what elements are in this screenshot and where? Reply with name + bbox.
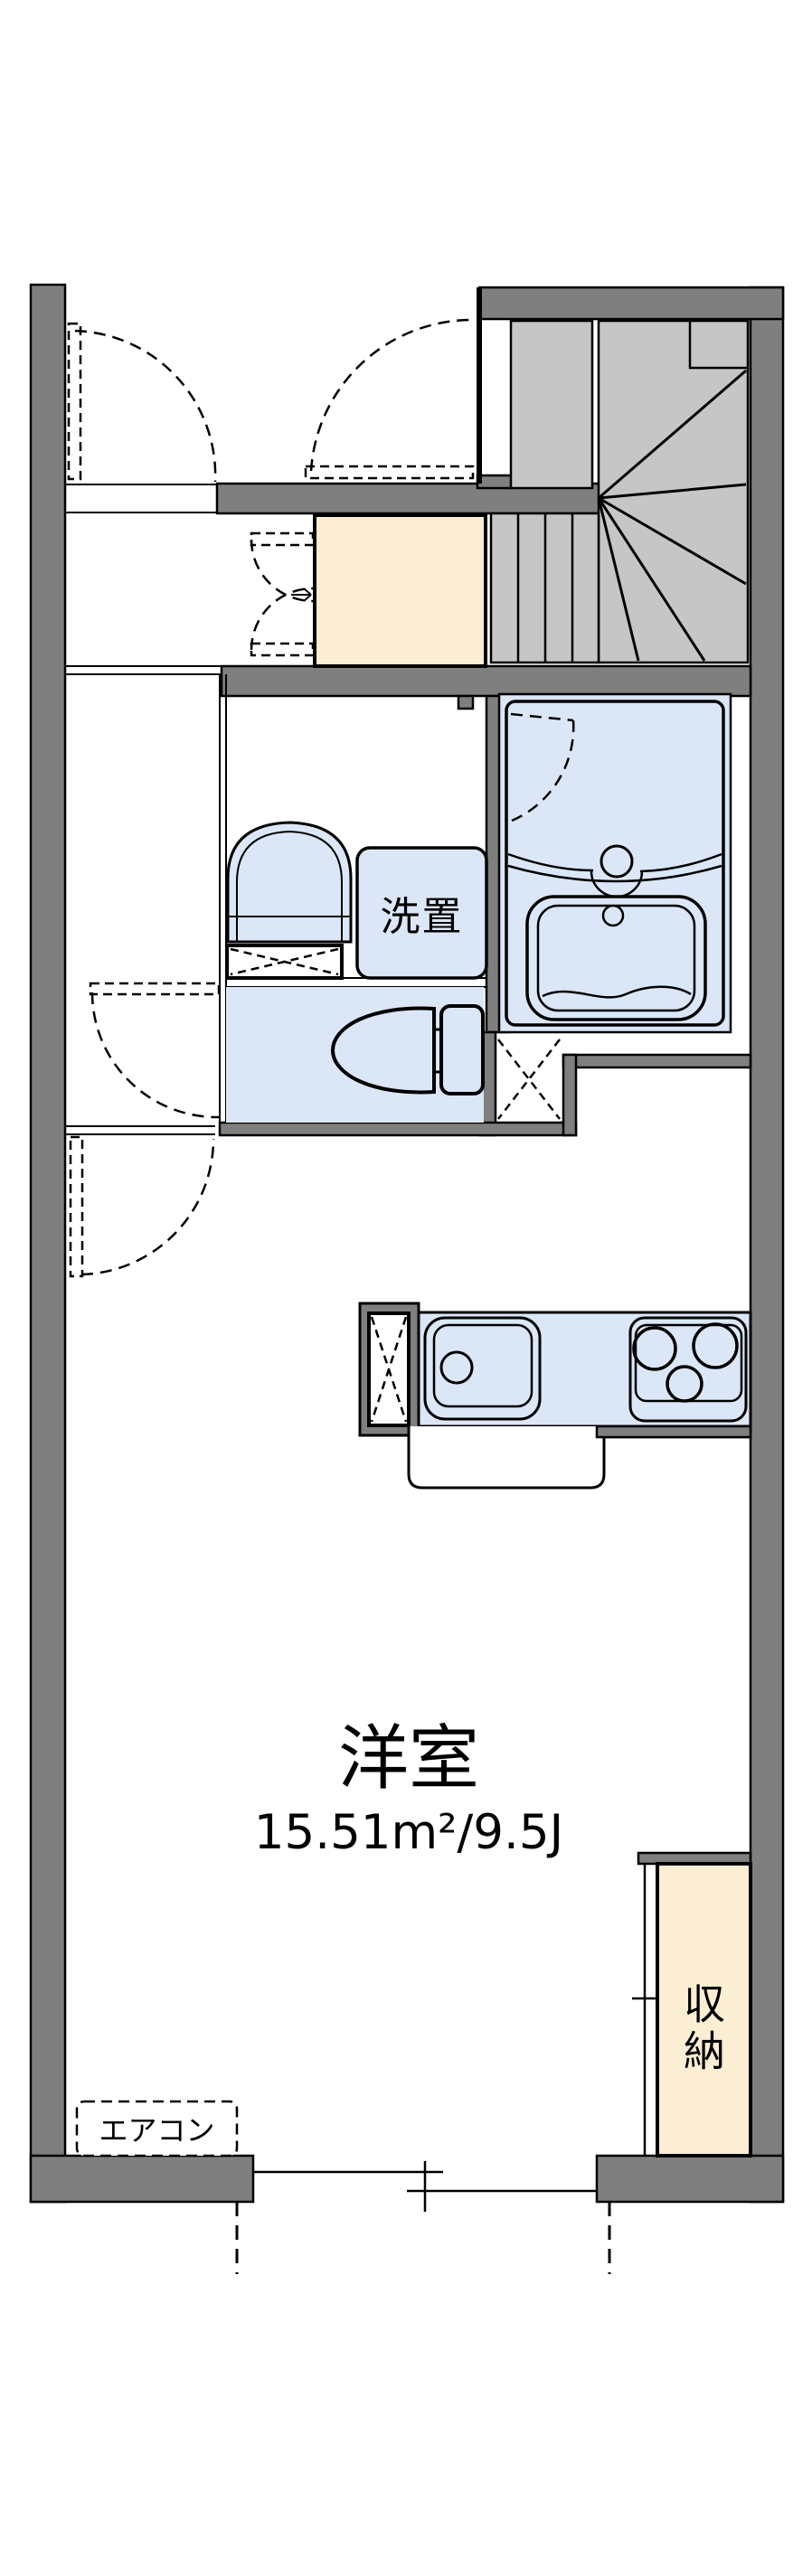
toilet-tank [441,1006,483,1094]
wall-washroom-top [222,666,751,696]
bathtub-drain-icon [603,906,623,926]
wall-bath-corner [563,1055,576,1135]
toilet-door [90,983,219,1117]
stair-top-step [690,321,748,368]
floor-plan: 洋室 15.51m²/9.5J 洗置 収納 エアコン [0,0,812,2576]
wall-top [479,287,783,319]
entrance-door [306,320,474,478]
opening-hall [65,666,222,674]
floor-plan-drawing [0,0,812,2576]
wall-right [751,287,783,2202]
wall-bath-bottom [563,1055,751,1067]
refrigerator-space [360,1303,419,1435]
main-room-label: 洋室 [217,1711,600,1794]
entrance-door-frame [477,287,482,484]
balcony-boundary [237,2202,609,2274]
inspection-hatch [227,945,342,978]
closet-sliding-door [645,1864,657,2156]
aircon-label: エアコン [77,2101,237,2156]
wall-entry-step [477,475,512,488]
wall-corridor-thin [220,674,226,1123]
porch-left-door [69,324,215,482]
wall-toilet-bottom [220,1123,576,1135]
wall-left [31,285,65,2202]
wall-washroom-stub [458,696,473,709]
main-room-area-label: 15.51m²/9.5J [127,1804,691,1860]
storage-label: 収納 [666,1939,738,2120]
bathroom [499,694,731,1032]
main-room-door [71,1137,213,1276]
wall-bottom-right [597,2156,783,2202]
toilet-room [226,987,484,1123]
kitchen-bar-counter [409,1426,604,1488]
laundry-label: 洗置 [357,848,486,978]
wall-bottom-left [31,2156,253,2202]
entry-floor [315,515,486,666]
wall-kitchen-stub-front [597,1426,751,1437]
opening-porch [65,484,217,512]
closet-double-doors [251,533,313,655]
stair-landing [511,321,592,488]
kitchen [360,1303,751,1488]
sliding-window [253,2161,597,2212]
bath-entry-cross [498,1039,560,1119]
opening-main-room [65,1126,215,1134]
washbasin [228,823,351,942]
bath-faucet-icon [601,846,632,877]
sink-faucet-icon [441,1352,472,1383]
